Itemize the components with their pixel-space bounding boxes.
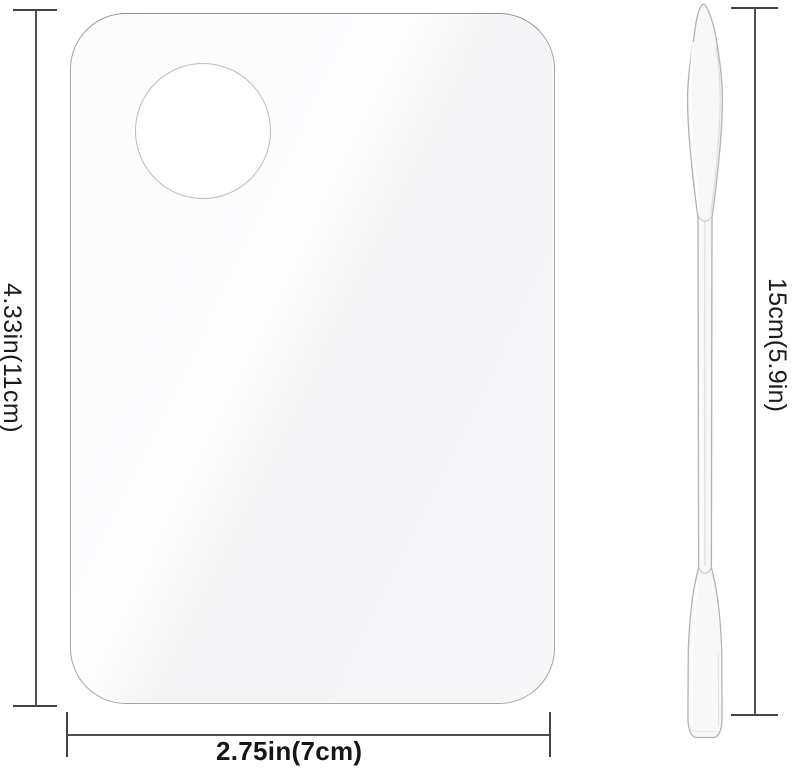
mixing-spatula (680, 0, 730, 745)
width-dimension-right-tick (549, 712, 551, 757)
palette-height-label: 4.33in(11cm) (0, 283, 24, 433)
length-dimension-bottom-cap (731, 714, 778, 716)
palette-height-dimension-line (35, 10, 37, 706)
spatula-length-label: 15cm(5.9in) (764, 278, 789, 412)
product-dimension-diagram: 4.33in(11cm) 2.75in(7cm) 15cm(5.9in) (0, 0, 804, 769)
spatula-length-dimension-line (754, 8, 756, 716)
thumb-hole (135, 63, 271, 199)
width-dimension-left-tick (66, 712, 68, 757)
palette-board (70, 13, 555, 704)
height-dimension-top-cap (13, 9, 57, 11)
height-dimension-bottom-cap (13, 705, 57, 707)
length-dimension-top-cap (731, 7, 778, 9)
palette-width-label: 2.75in(7cm) (216, 738, 362, 764)
